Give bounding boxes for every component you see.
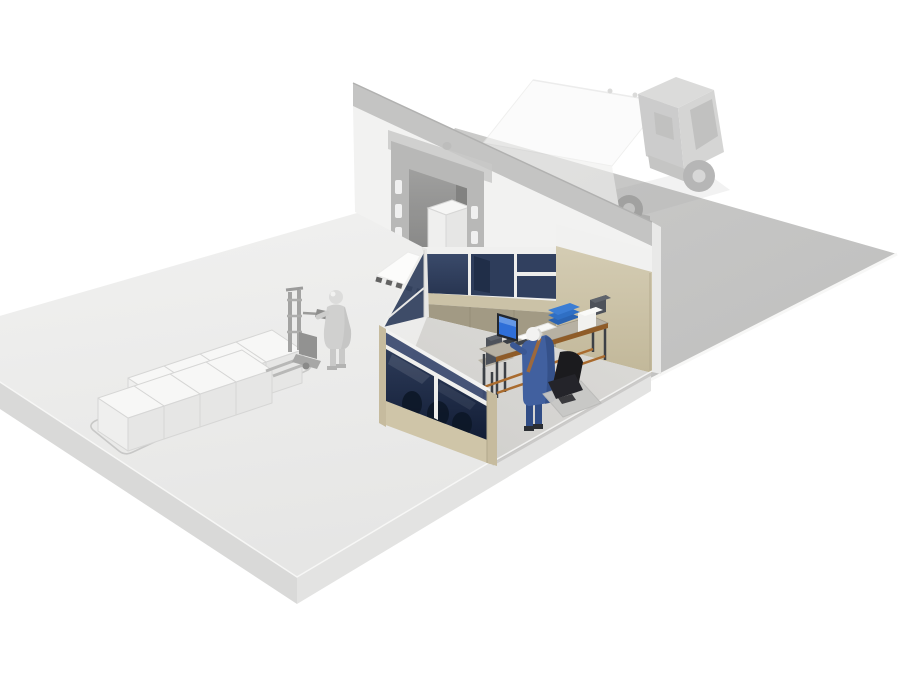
- warehouse-dock-illustration: [0, 0, 900, 675]
- dock-frame-slot: [471, 206, 478, 219]
- wall-end-face: [652, 222, 661, 374]
- operator-foot: [336, 364, 346, 368]
- operator-leg: [330, 349, 336, 367]
- dock-light: [443, 142, 452, 150]
- stacker-mast-top: [286, 288, 303, 290]
- operator-head-highlight: [331, 292, 336, 297]
- cab-wheel-hub: [693, 170, 706, 183]
- worker-shoe: [533, 424, 543, 429]
- sw-wall-right-cap: [487, 390, 497, 466]
- stacker-wheel: [303, 363, 310, 370]
- scene-canvas: [0, 0, 900, 675]
- operator-foot: [327, 366, 337, 370]
- worker-leg: [526, 405, 533, 428]
- nw-glass-h-mullion: [517, 272, 558, 276]
- operator-head: [329, 290, 343, 304]
- dock-frame-slot: [471, 231, 478, 244]
- nw-glass-pane: [426, 254, 468, 295]
- dock-pillar-through-glass: [474, 256, 490, 293]
- operator-leg: [339, 349, 345, 365]
- trailer-hinge-dot: [608, 89, 613, 94]
- sw-glass-v-mullion: [434, 376, 438, 420]
- dock-frame-slot: [395, 180, 402, 194]
- worker-leg: [535, 403, 542, 426]
- nw-glass-v-mullion: [514, 254, 517, 297]
- nw-glass-v-mullion: [468, 254, 471, 295]
- sw-wall-left-cap: [379, 325, 386, 427]
- nw-wall-top-rail: [422, 247, 558, 254]
- dock-frame-slot: [395, 204, 402, 218]
- trailer-hinge-dot: [633, 93, 638, 98]
- worker-shoe: [524, 426, 534, 431]
- nw-glass-pane: [517, 254, 558, 299]
